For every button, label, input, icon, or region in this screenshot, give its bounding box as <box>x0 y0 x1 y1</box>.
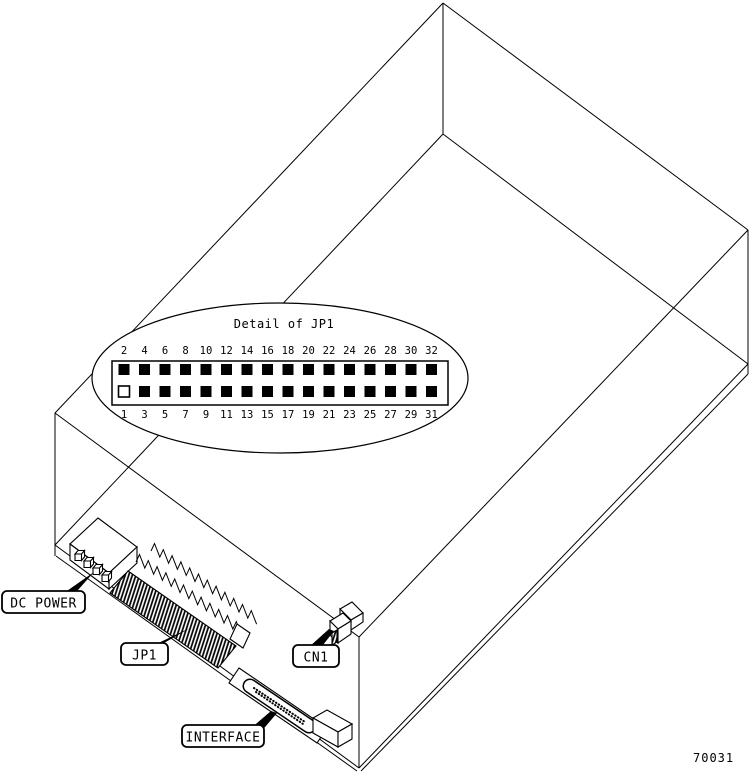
jp1-detail-pin-22 <box>324 364 335 375</box>
jp1-detail-pin-10 <box>201 364 212 375</box>
detail-callout: Detail of JP1 24681012141618202224262830… <box>92 303 468 453</box>
dc-pin-1 <box>75 551 85 561</box>
jp1-detail-pin-4 <box>139 364 150 375</box>
jp1-detail-pin-number-1: 1 <box>121 409 127 421</box>
jp1-detail-pin-number-29: 29 <box>405 409 418 421</box>
interface-callout: INTERFACE <box>182 711 277 747</box>
jp1-detail-pin-28 <box>385 364 396 375</box>
dc-pin-2 <box>84 558 94 568</box>
jp1-detail-pin-19 <box>303 386 314 397</box>
jp1-detail-pin-7 <box>180 386 191 397</box>
jp1-detail-pin-number-28: 28 <box>384 345 397 357</box>
dc-pin-4 <box>102 572 112 582</box>
jp1-detail-pin-number-27: 27 <box>384 409 397 421</box>
jp1-detail-pin-12 <box>221 364 232 375</box>
dc-power-callout: DC POWER <box>2 572 94 613</box>
jp1-detail-pin-number-16: 16 <box>261 345 274 357</box>
dc-power-label: DC POWER <box>10 597 77 612</box>
jp1-detail-pin-13 <box>242 386 253 397</box>
dc-pin-3 <box>93 565 103 575</box>
jp1-detail-pin-3 <box>139 386 150 397</box>
jp1-detail-pin-1 <box>119 386 130 397</box>
jp1-detail-pin-31 <box>426 386 437 397</box>
jp1-detail-pin-number-6: 6 <box>162 345 168 357</box>
jp1-detail-pin-32 <box>426 364 437 375</box>
jp1-callout: JP1 <box>121 628 190 665</box>
jp1-detail-pin-number-20: 20 <box>302 345 315 357</box>
figure-number: 70031 <box>693 751 734 765</box>
jp1-detail-pin-25 <box>365 386 376 397</box>
jp1-detail-pin-8 <box>180 364 191 375</box>
jp1-detail-pin-11 <box>221 386 232 397</box>
jp1-detail-pin-number-21: 21 <box>323 409 336 421</box>
jp1-detail-pin-27 <box>385 386 396 397</box>
jp1-detail-pin-number-32: 32 <box>425 345 438 357</box>
jp1-detail-pin-2 <box>119 364 130 375</box>
jp1-detail-pin-23 <box>344 386 355 397</box>
jp1-detail-pin-16 <box>262 364 273 375</box>
jp1-detail-pin-21 <box>324 386 335 397</box>
jp1-detail-pin-29 <box>406 386 417 397</box>
jp1-detail-pin-6 <box>160 364 171 375</box>
edge-bottom-rear-right <box>443 134 748 364</box>
jp1-detail-pin-number-12: 12 <box>220 345 233 357</box>
jp1-detail-pin-number-10: 10 <box>200 345 213 357</box>
jp1-detail-pin-number-3: 3 <box>141 409 147 421</box>
jp1-detail-pin-18 <box>283 364 294 375</box>
jp1-detail-pin-number-22: 22 <box>323 345 336 357</box>
jp1-detail-pin-number-31: 31 <box>425 409 438 421</box>
jp1-detail-pin-26 <box>365 364 376 375</box>
jp1-detail-pin-number-11: 11 <box>220 409 233 421</box>
jp1-detail-pin-5 <box>160 386 171 397</box>
jp1-detail-pin-24 <box>344 364 355 375</box>
jp1-detail-pin-number-5: 5 <box>162 409 168 421</box>
jp1-detail-pin-number-24: 24 <box>343 345 356 357</box>
dc-power-pointer <box>64 572 94 593</box>
jp1-detail-pin-number-30: 30 <box>405 345 418 357</box>
drawing-page: Detail of JP1 24681012141618202224262830… <box>0 0 751 775</box>
cn1-label: CN1 <box>304 651 329 666</box>
cn1-connector <box>330 602 363 645</box>
jp1-detail-pin-14 <box>242 364 253 375</box>
jp1-detail-pin-number-25: 25 <box>364 409 377 421</box>
detail-title: Detail of JP1 <box>234 317 334 331</box>
jp1-detail-pin-number-9: 9 <box>203 409 209 421</box>
jp1-detail-pin-number-15: 15 <box>261 409 274 421</box>
jp1-detail-pin-number-23: 23 <box>343 409 356 421</box>
jp1-detail-pin-number-14: 14 <box>241 345 254 357</box>
diagram-canvas: Detail of JP1 24681012141618202224262830… <box>0 0 751 775</box>
jp1-detail-pin-number-7: 7 <box>182 409 188 421</box>
jp1-detail-pin-30 <box>406 364 417 375</box>
jp1-detail-pin-number-19: 19 <box>302 409 315 421</box>
jp1-detail-pin-15 <box>262 386 273 397</box>
jp1-detail-pin-20 <box>303 364 314 375</box>
jp1-label: JP1 <box>132 649 157 664</box>
jp1-detail-pin-number-2: 2 <box>121 345 127 357</box>
jp1-detail-pin-number-26: 26 <box>364 345 377 357</box>
jp1-detail-pin-17 <box>283 386 294 397</box>
jp1-detail-pin-number-4: 4 <box>141 345 147 357</box>
interface-label: INTERFACE <box>186 731 261 746</box>
base-lip-right <box>361 374 748 771</box>
jp1-detail-pin-number-8: 8 <box>182 345 188 357</box>
jp1-detail-pin-9 <box>201 386 212 397</box>
jp1-detail-pin-number-13: 13 <box>241 409 254 421</box>
jp1-detail-pin-number-18: 18 <box>282 345 295 357</box>
edge-top-right <box>443 3 748 230</box>
jp1-detail-pin-number-17: 17 <box>282 409 295 421</box>
